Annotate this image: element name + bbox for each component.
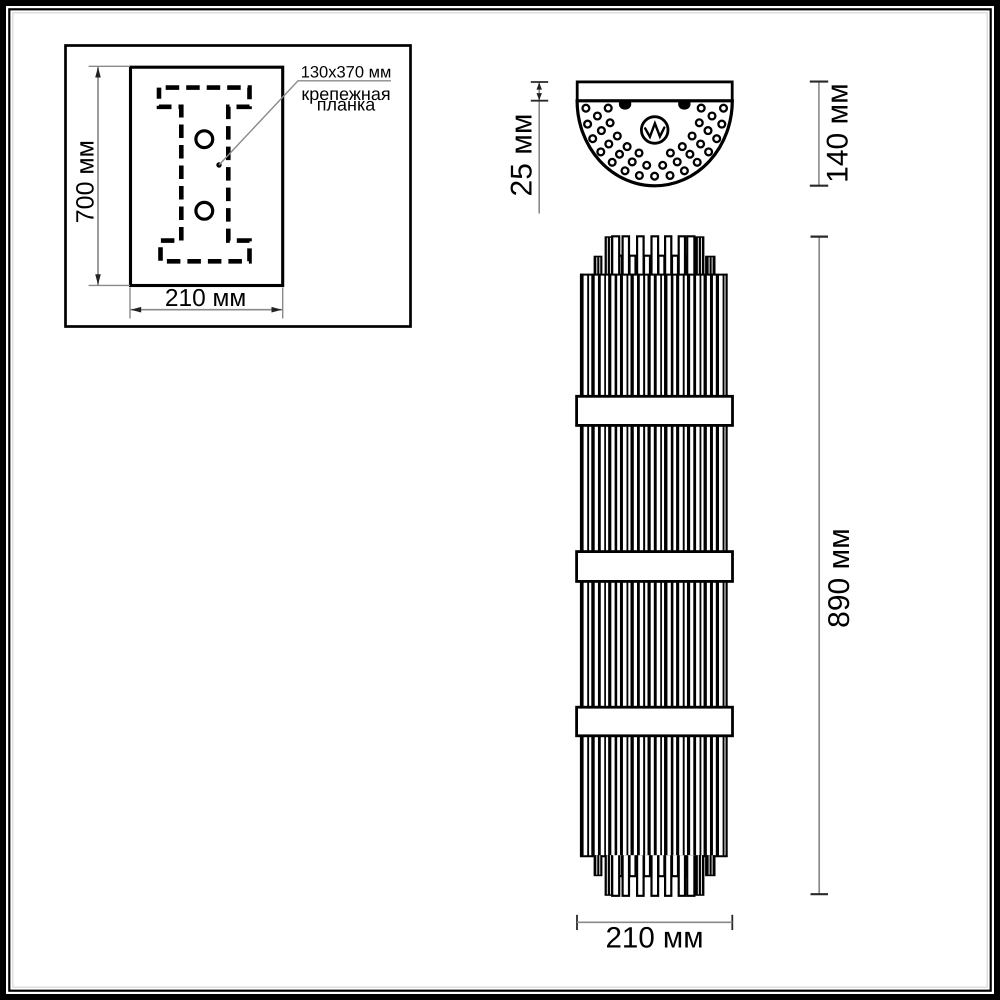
svg-text:планка: планка — [317, 95, 376, 115]
svg-text:210 мм: 210 мм — [165, 285, 246, 312]
svg-text:130x370 мм: 130x370 мм — [301, 64, 392, 82]
svg-text:25 мм: 25 мм — [506, 114, 539, 197]
svg-text:890 мм: 890 мм — [823, 528, 856, 628]
svg-text:140 мм: 140 мм — [822, 83, 855, 183]
svg-text:700 мм: 700 мм — [71, 140, 99, 223]
svg-text:210 мм: 210 мм — [606, 922, 704, 955]
